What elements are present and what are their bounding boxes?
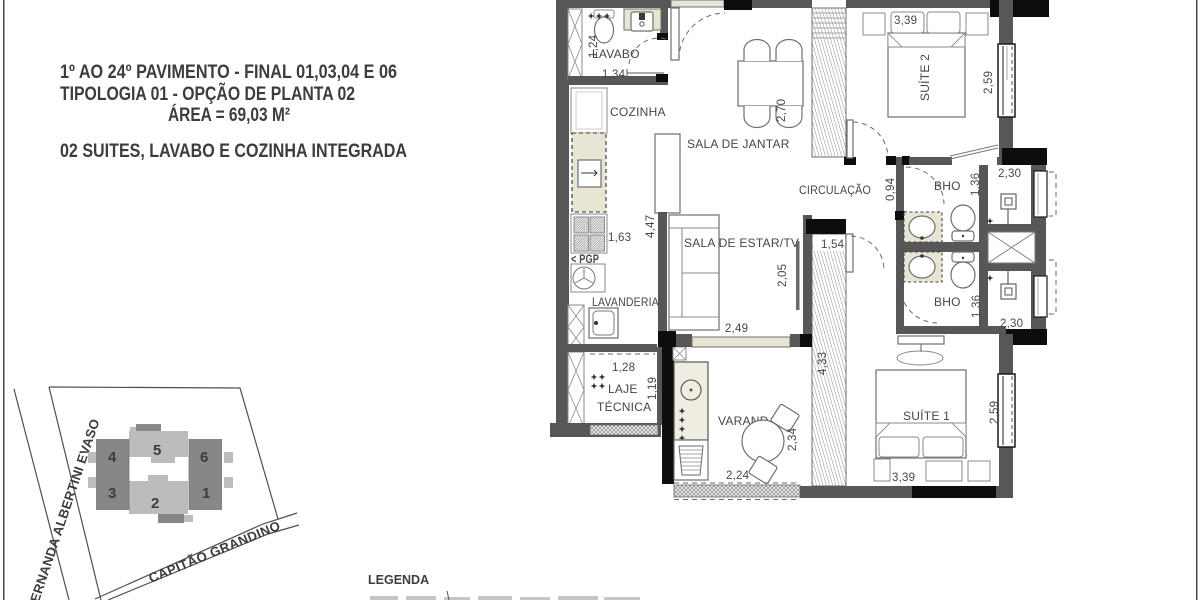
svg-text:BHO: BHO [934, 295, 961, 309]
svg-text:2,05: 2,05 [777, 264, 789, 287]
svg-text:SUÍTE 2: SUÍTE 2 [917, 54, 932, 101]
svg-text:1,54: 1,54 [821, 239, 845, 251]
svg-text:1: 1 [202, 485, 210, 502]
svg-text:2,24: 2,24 [726, 470, 750, 482]
svg-text:SUÍTE 1: SUÍTE 1 [903, 408, 950, 423]
svg-text:2,59: 2,59 [989, 401, 1001, 424]
svg-text:1,28: 1,28 [612, 362, 635, 374]
svg-text:2,70: 2,70 [776, 99, 788, 122]
svg-text:6: 6 [200, 449, 208, 466]
svg-text:4,47: 4,47 [645, 215, 657, 238]
svg-text:2,59: 2,59 [983, 71, 995, 94]
svg-text:4: 4 [108, 449, 117, 466]
svg-text:2,49: 2,49 [725, 323, 748, 335]
svg-text:1,24: 1,24 [588, 34, 600, 58]
svg-text:0,94: 0,94 [885, 177, 897, 201]
svg-text:5: 5 [153, 442, 161, 459]
svg-text:TÉCNICA: TÉCNICA [597, 399, 651, 414]
svg-text:3: 3 [108, 485, 116, 502]
svg-text:1,36: 1,36 [971, 295, 983, 318]
svg-text:LAVANDERIA: LAVANDERIA [592, 295, 659, 309]
svg-text:BHO: BHO [934, 179, 961, 193]
svg-text:SALA DE ESTAR/TV: SALA DE ESTAR/TV [684, 236, 799, 250]
svg-text:COZINHA: COZINHA [610, 105, 666, 119]
svg-text:TIPOLOGIA 01 - OPÇÃO DE PLANTA: TIPOLOGIA 01 - OPÇÃO DE PLANTA 02 [60, 82, 355, 105]
svg-text:1,34: 1,34 [602, 69, 626, 81]
svg-text:3,39: 3,39 [892, 472, 915, 484]
svg-text:1,63: 1,63 [608, 232, 631, 244]
svg-text:LEGENDA: LEGENDA [368, 573, 429, 587]
svg-text:2: 2 [151, 495, 159, 512]
svg-text:02 SUITES, LAVABO E COZINHA IN: 02 SUITES, LAVABO E COZINHA INTEGRADA [60, 140, 407, 162]
svg-text:4,33: 4,33 [817, 352, 829, 375]
svg-text:2,34: 2,34 [787, 427, 799, 451]
svg-text:2,30: 2,30 [1000, 318, 1023, 330]
svg-text:1º AO 24º PAVIMENTO - FINAL 01: 1º AO 24º PAVIMENTO - FINAL 01,03,04 E 0… [60, 61, 397, 83]
svg-text:SALA DE JANTAR: SALA DE JANTAR [687, 137, 790, 151]
svg-text:3,39: 3,39 [894, 15, 917, 27]
svg-text:2,30: 2,30 [998, 168, 1021, 180]
svg-text:LAJE: LAJE [608, 382, 638, 396]
svg-text:CIRCULAÇÃO: CIRCULAÇÃO [799, 183, 871, 197]
svg-text:1,36: 1,36 [970, 173, 982, 196]
svg-text:ÁREA = 69,03 M²: ÁREA = 69,03 M² [168, 103, 290, 126]
